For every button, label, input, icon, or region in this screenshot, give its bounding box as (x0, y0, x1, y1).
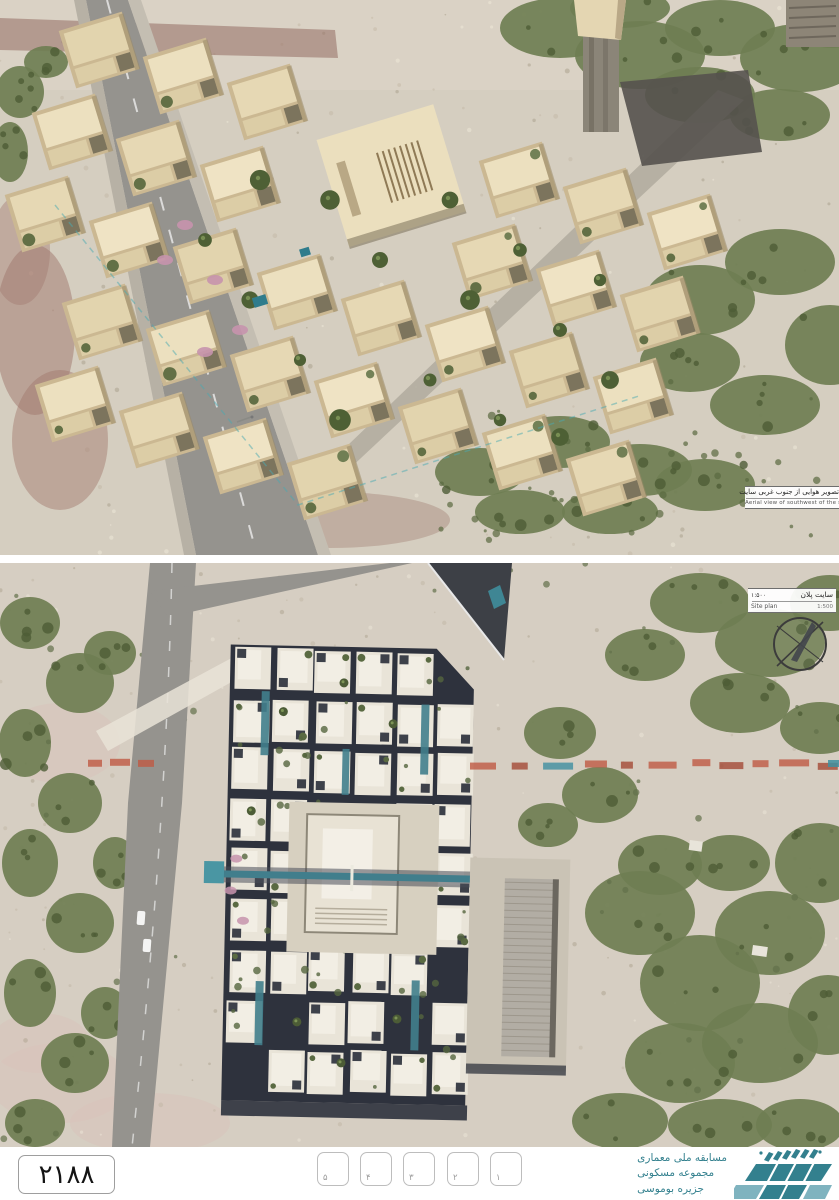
page-indicator-2: ۲ (447, 1152, 479, 1186)
page-indicator-label: ۱ (496, 1173, 501, 1183)
logo-line-1: مسابقه ملی معماری (637, 1151, 727, 1167)
page-indicator-5: ۵ (317, 1152, 349, 1186)
page-indicator-label: ۲ (453, 1173, 458, 1183)
pier (501, 878, 559, 1057)
entry-number-badge: ۲۱۸۸ (18, 1155, 115, 1194)
site-plan-scale-fa: ۱:۵۰۰ (751, 592, 766, 599)
entry-number: ۲۱۸۸ (39, 1160, 95, 1190)
page-indicator-label: ۴ (366, 1173, 371, 1183)
site-plan-caption: ۱:۵۰۰ سایت پلان Site plan 1:500 (748, 588, 836, 613)
aerial-caption-fa: تصویر هوایی از جنوب غربی سایت (745, 487, 839, 498)
asphalt-pad (620, 70, 762, 166)
page-indicator-3: ۳ (403, 1152, 435, 1186)
aerial-caption-en: Aerial view of southwest of the site (745, 499, 839, 508)
aerial-caption: تصویر هوایی از جنوب غربی سایت Aerial vie… (745, 486, 839, 509)
page-indicator-label: ۳ (409, 1173, 414, 1183)
page-indicator-1: ۱ (490, 1152, 522, 1186)
site-plan-scene (0, 563, 839, 1147)
page-indicator-4: ۴ (360, 1152, 392, 1186)
site-plan-image: ۱:۵۰۰ سایت پلان Site plan 1:500 (0, 563, 839, 1147)
competition-logo: مسابقه ملی معماری مجموعه مسکونی جزیره بو… (637, 1148, 834, 1200)
north-arrow-icon (764, 613, 836, 677)
aerial-render-scene (0, 0, 839, 555)
site-plan-title-fa: سایت پلان (801, 589, 833, 601)
competition-logo-icon (734, 1148, 834, 1200)
footer: ۲۱۸۸ ۵ ۴ ۳ ۲ ۱ مسابقه ملی معماری مجموعه … (0, 1147, 839, 1200)
site-plan-scale-en: 1:500 (817, 604, 833, 610)
competition-logo-text: مسابقه ملی معماری مجموعه مسکونی جزیره بو… (637, 1151, 727, 1198)
page-indicator-label: ۵ (323, 1173, 328, 1183)
competition-board: تصویر هوایی از جنوب غربی سایت Aerial vie… (0, 0, 839, 1200)
logo-line-3: جزیره بوموسی (637, 1182, 727, 1198)
logo-line-2: مجموعه مسکونی (637, 1166, 727, 1182)
aerial-render-image: تصویر هوایی از جنوب غربی سایت Aerial vie… (0, 0, 839, 555)
corner-building (786, 0, 839, 47)
site-plan-title-en: Site plan (751, 602, 777, 612)
